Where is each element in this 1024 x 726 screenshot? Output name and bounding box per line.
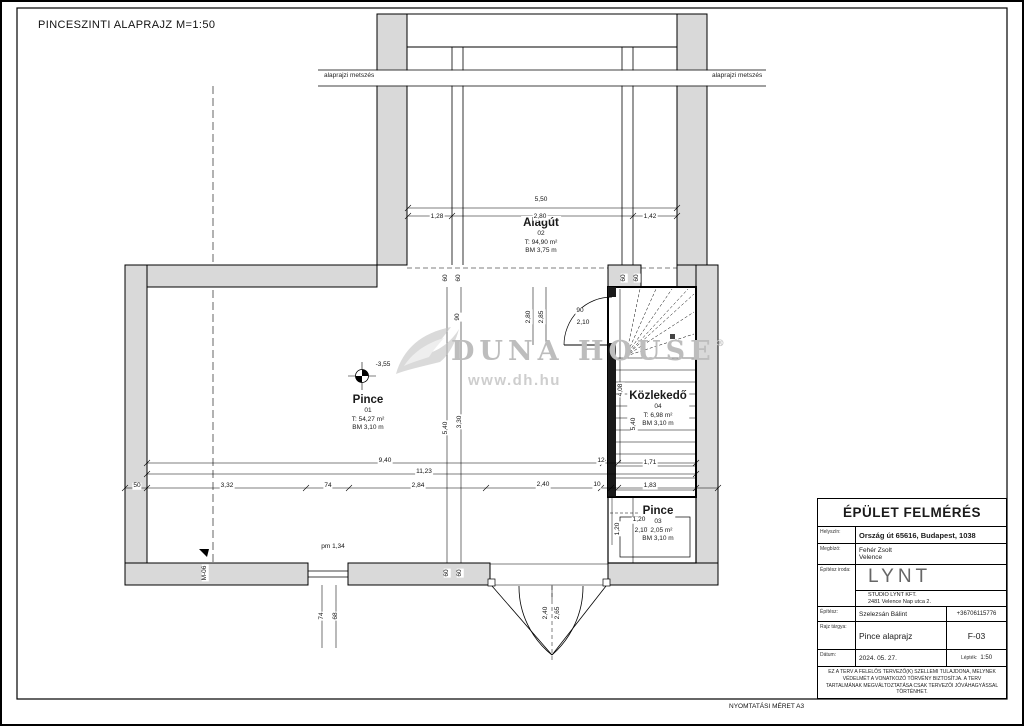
section-cut-band — [318, 70, 766, 86]
client-city: Velence — [859, 554, 1003, 561]
date-value: 2024. 05. 27. — [856, 650, 946, 666]
sheet-title: PINCESZINTI ALAPRAJZ M=1:50 — [38, 19, 215, 31]
scale-label: Lépték: — [961, 655, 977, 661]
registered-mark: ® — [716, 339, 725, 349]
architect-phone: +36706115776 — [946, 607, 1006, 621]
room-label-pince03: Pince 03 T: 2,05 m² BM 3,10 m — [640, 504, 675, 543]
architect-label: Építész: — [818, 607, 856, 621]
elevation-marker — [348, 362, 376, 390]
room-label-alagut: Alagút 02 T: 94,90 m² BM 3,75 m — [521, 216, 561, 255]
room-label-pince01: Pince 01 T: 54,27 m² BM 3,10 m — [350, 393, 387, 432]
lynt-logo: LYNT — [856, 565, 1006, 590]
print-size-note: NYOMTATÁSI MÉRET A3 — [729, 703, 804, 710]
title-block: ÉPÜLET FELMÉRÉS Helyszín: Ország út 6561… — [817, 498, 1007, 699]
scale-cell: Lépték: 1:50 — [946, 650, 1006, 666]
location-value: Ország út 65616, Budapest, 1038 — [856, 527, 1006, 544]
drawing-sheet: PINCESZINTI ALAPRAJZ M=1:50 alaprajzi me… — [0, 0, 1024, 726]
section-label-left: alaprajzi metszés — [322, 72, 376, 79]
office-address: 2481 Velence Nap utca 2. — [868, 599, 1006, 606]
window — [308, 563, 348, 585]
sheet-number: F-03 — [946, 622, 1006, 649]
office-firm: STUDIO LYNT KFT. — [868, 592, 1006, 599]
drawing-subject: Pince alaprajz — [856, 622, 946, 649]
location-label: Helyszín: — [818, 527, 856, 544]
subject-label: Rajz tárgya: — [818, 622, 856, 649]
scale-value: 1:50 — [980, 655, 992, 661]
section-marker-arrow — [199, 549, 209, 557]
client-name: Fehér Zsolt — [859, 547, 1003, 554]
dunahouse-logo-icon — [396, 327, 459, 374]
date-label: Dátum: — [818, 650, 856, 666]
watermark-brand: DUNA HOUSE® — [451, 336, 725, 367]
section-label-right: alaprajzi metszés — [710, 72, 764, 79]
architect-name: Szelezsán Bálint — [856, 607, 946, 621]
titleblock-header: ÉPÜLET FELMÉRÉS — [818, 499, 1006, 526]
entrance-door — [488, 564, 610, 660]
client-label: Megbízó: — [818, 544, 856, 564]
office-label: Építész iroda: — [818, 565, 856, 606]
watermark-url: www.dh.hu — [468, 372, 561, 389]
room-label-kozlekedo: Közlekedő 04 T: 6,98 m² BM 3,10 m — [627, 389, 689, 428]
copyright-disclaimer: EZ A TERV A FELELŐS TERVEZŐ(K) SZELLEMI … — [818, 666, 1006, 698]
